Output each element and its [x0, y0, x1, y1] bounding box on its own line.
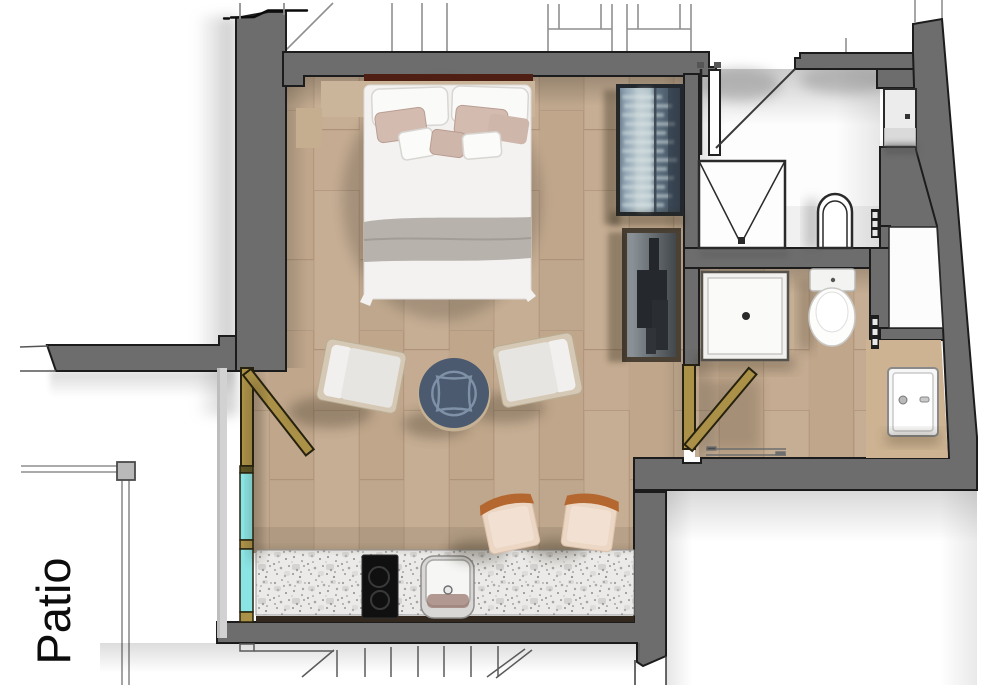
svg-text:Patio: Patio — [27, 557, 80, 664]
